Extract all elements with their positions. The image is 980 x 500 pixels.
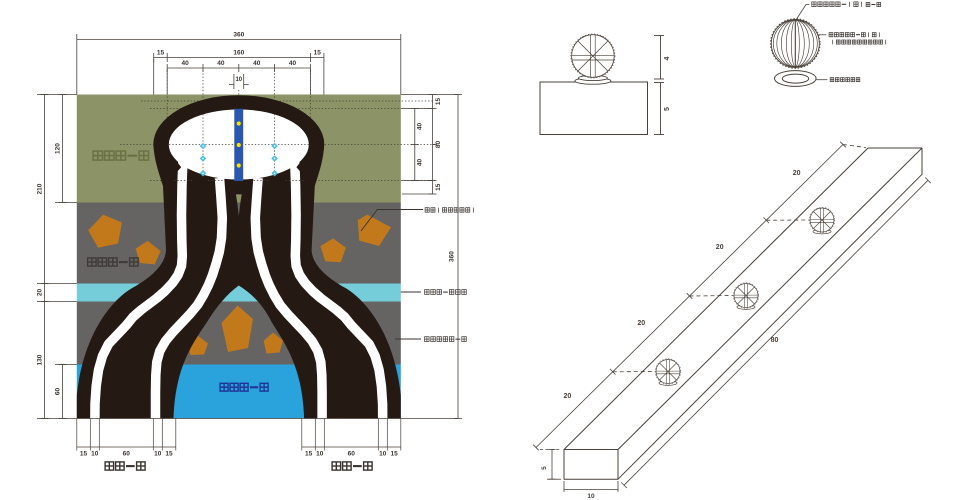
svg-text:5: 5 <box>541 466 548 470</box>
svg-text:15: 15 <box>314 50 322 57</box>
svg-text:15: 15 <box>80 451 88 458</box>
svg-text:10: 10 <box>316 451 324 458</box>
svg-text:40: 40 <box>417 159 424 167</box>
svg-text:15: 15 <box>157 50 165 57</box>
svg-text:60: 60 <box>123 451 131 458</box>
svg-text:20: 20 <box>637 320 645 327</box>
svg-text:40: 40 <box>289 60 297 67</box>
svg-text:20: 20 <box>716 244 724 251</box>
svg-text:15: 15 <box>435 98 442 106</box>
svg-text:40: 40 <box>181 60 189 67</box>
svg-text:15: 15 <box>390 451 398 458</box>
svg-text:10: 10 <box>91 451 99 458</box>
svg-text:20: 20 <box>37 289 44 297</box>
svg-text:5: 5 <box>664 107 671 111</box>
svg-text:40: 40 <box>253 60 261 67</box>
svg-text:10: 10 <box>379 451 387 458</box>
svg-text:60: 60 <box>348 451 356 458</box>
svg-text:20: 20 <box>793 170 801 177</box>
svg-text:15: 15 <box>435 183 442 191</box>
svg-text:120: 120 <box>55 143 62 154</box>
svg-text:80: 80 <box>771 337 779 344</box>
svg-text:20: 20 <box>564 393 572 400</box>
svg-text:10: 10 <box>235 77 242 83</box>
svg-text:80: 80 <box>435 141 442 149</box>
svg-text:210: 210 <box>37 183 44 194</box>
svg-text:360: 360 <box>449 251 456 262</box>
svg-text:10: 10 <box>154 451 162 458</box>
svg-text:130: 130 <box>37 354 44 365</box>
svg-text:15: 15 <box>305 451 313 458</box>
svg-text:40: 40 <box>417 123 424 131</box>
svg-text:40: 40 <box>217 60 225 67</box>
svg-text:4: 4 <box>664 56 671 60</box>
svg-text:360: 360 <box>233 32 244 39</box>
svg-text:15: 15 <box>165 451 173 458</box>
svg-text:60: 60 <box>55 388 62 396</box>
svg-text:10: 10 <box>587 493 595 500</box>
svg-text:160: 160 <box>233 50 244 57</box>
